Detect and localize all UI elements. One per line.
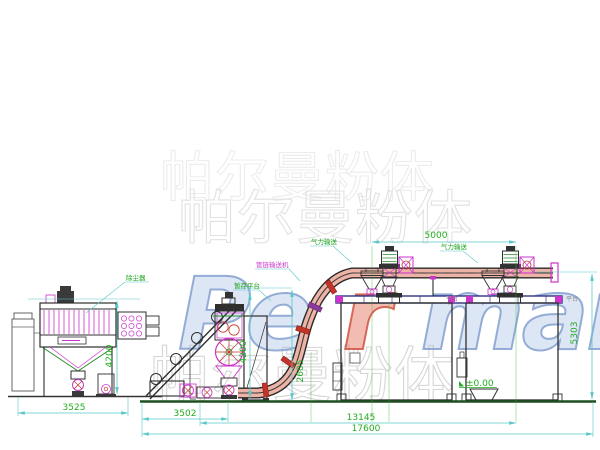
label-buffer-platform-text: 暂存平台 (234, 281, 260, 290)
process-flow-drawing: 帕尔曼粉体 帕尔曼粉体 帕尔曼粉体 Pe r man (0, 0, 600, 450)
label-dust-collector: 除尘器 (86, 273, 149, 313)
dim-4200-mill-text: 4200 (239, 340, 249, 363)
dim-17600-text: 17600 (352, 424, 381, 434)
dim-17600: 17600 (142, 424, 593, 434)
drawing-canvas: 帕尔曼粉体 帕尔曼粉体 帕尔曼粉体 Pe r man (0, 0, 600, 450)
label-platform-right: 平台 (566, 295, 578, 303)
dim-3525: 3525 (18, 397, 128, 416)
filter-bags (44, 310, 109, 334)
dim-3502-text: 3502 (174, 409, 197, 419)
label-pneumatic-right-text: 气力输送 (441, 242, 468, 251)
dim-13145: 13145 (200, 413, 516, 423)
ground-level-text: ±0.00 (466, 379, 494, 389)
dim-2605-text: 2605 (296, 360, 306, 383)
label-platform-left: 平台 (446, 295, 458, 303)
tank-cap (14, 313, 32, 319)
dim-13145-text: 13145 (347, 413, 376, 423)
top-motor (57, 291, 74, 303)
label-pneumatic-left-text: 气力输送 (311, 237, 338, 246)
ground-level-mark: ±0.00 (459, 379, 497, 389)
dim-5303-text: 5303 (570, 322, 580, 345)
label-dust-collector-text: 除尘器 (126, 273, 146, 282)
dust-collector (8, 286, 162, 397)
hopper-cone (42, 347, 114, 371)
silo-2-discharge (470, 389, 498, 400)
dim-4200-dust-text: 4200 (105, 344, 115, 367)
air-tank (12, 319, 34, 391)
dim-3525-text: 3525 (63, 403, 86, 413)
dim-5000-text: 5000 (425, 231, 448, 241)
label-tube-chain-conveyor-text: 管链输送机 (256, 260, 289, 269)
